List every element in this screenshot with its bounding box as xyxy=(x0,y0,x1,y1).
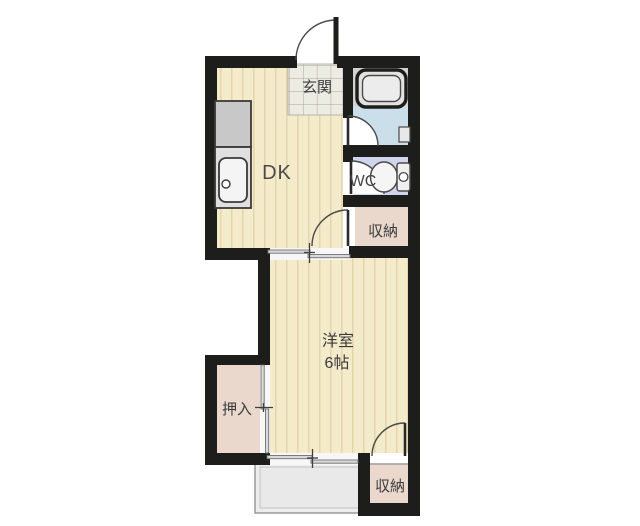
floorplan-drawing: 玄関 DK WC 収納 洋室 6帖 押入 収納 xyxy=(0,0,640,526)
bath-counter-icon xyxy=(399,127,410,142)
wall-top-left xyxy=(205,56,297,68)
wall-storage-bottom-bottom xyxy=(358,503,420,516)
storage-bottom-label: 収納 xyxy=(375,478,405,495)
window-track xyxy=(267,456,312,459)
sink-drain-icon xyxy=(222,180,230,188)
kitchen-counter-icon xyxy=(215,101,251,147)
closet-door-track xyxy=(261,365,264,409)
wall-bath-left xyxy=(343,62,353,118)
kitchen-unit xyxy=(215,101,251,208)
entrance-door-arc xyxy=(296,20,336,60)
bathtub-inner-icon xyxy=(363,76,401,102)
balcony-inner xyxy=(260,467,363,508)
closet-door-track xyxy=(266,409,269,453)
dk-label: DK xyxy=(262,162,292,184)
wall-wc-bottom xyxy=(343,195,408,207)
sliding-door-track xyxy=(308,255,350,258)
wc-label: WC xyxy=(350,173,377,190)
wall-bath-wc xyxy=(343,145,408,157)
wall-western-left xyxy=(258,248,270,365)
wall-closet-left xyxy=(205,355,217,465)
toilet-button-icon xyxy=(399,173,408,182)
toilet xyxy=(371,162,411,192)
wall-dk-bottom xyxy=(205,248,267,260)
western-room-label: 洋室 xyxy=(322,332,354,350)
sliding-door-track xyxy=(268,250,310,253)
floorplan-page: 玄関 DK WC 収納 洋室 6帖 押入 収納 xyxy=(0,0,640,526)
storage-mid-label: 収納 xyxy=(368,223,398,240)
western-room-size-label: 6帖 xyxy=(325,354,350,372)
closet-label: 押入 xyxy=(222,401,252,418)
window-track xyxy=(311,460,358,463)
wall-right xyxy=(408,56,420,516)
entrance-label: 玄関 xyxy=(302,79,332,96)
kitchen-sink-icon xyxy=(219,158,247,202)
wall-divider-right xyxy=(349,246,408,258)
